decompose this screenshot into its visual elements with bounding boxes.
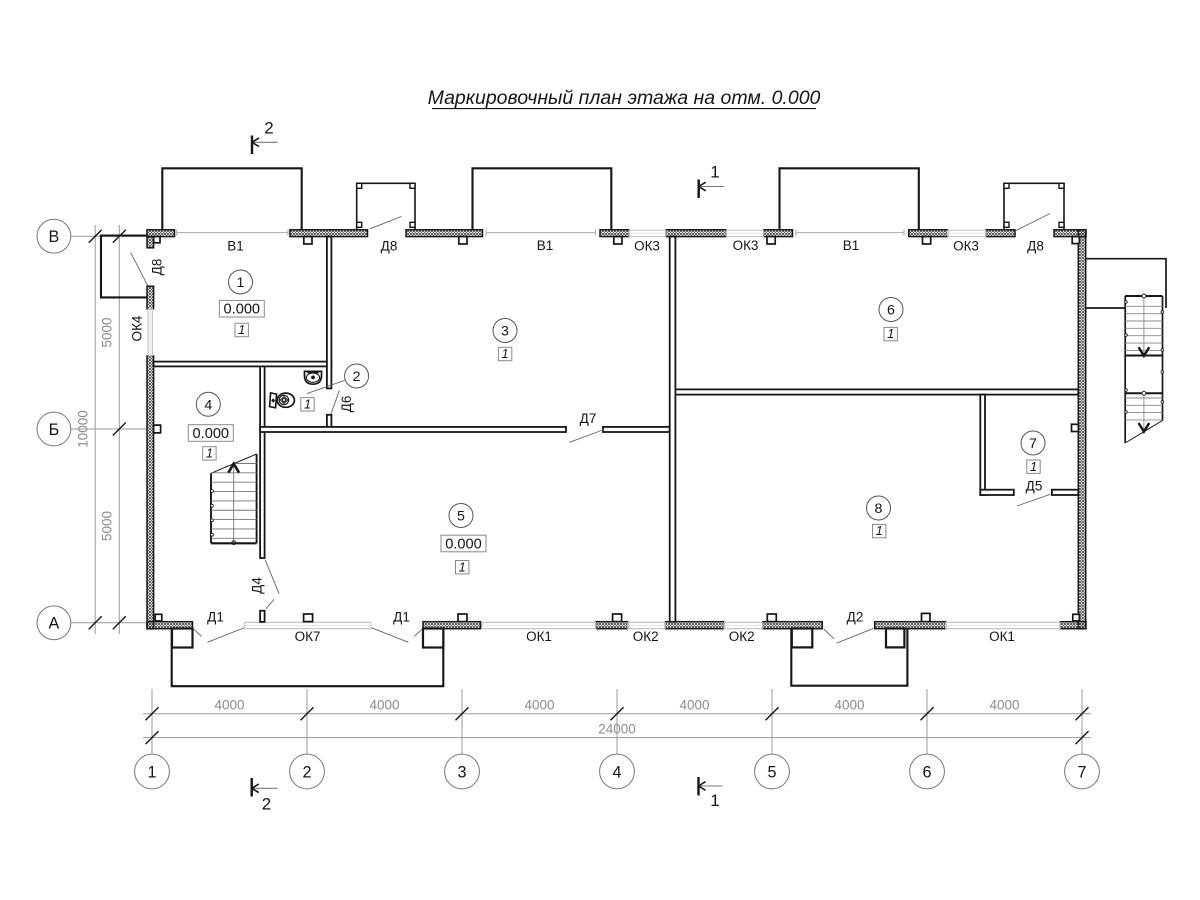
svg-text:Д8: Д8: [381, 239, 398, 254]
svg-text:1: 1: [887, 326, 894, 341]
svg-text:Д5: Д5: [1026, 479, 1043, 494]
svg-text:Д1: Д1: [393, 609, 410, 624]
svg-text:Маркировочный план этажа на от: Маркировочный план этажа на отм. 0.000: [428, 87, 821, 109]
svg-text:4000: 4000: [524, 698, 554, 713]
svg-text:1: 1: [876, 523, 883, 538]
svg-text:4: 4: [204, 397, 212, 413]
svg-text:В1: В1: [537, 238, 554, 253]
svg-text:1: 1: [237, 275, 245, 291]
svg-text:1: 1: [1030, 459, 1037, 474]
svg-text:2: 2: [353, 369, 361, 385]
svg-text:3: 3: [501, 324, 509, 340]
svg-text:ОК1: ОК1: [989, 629, 1015, 644]
svg-text:В: В: [48, 228, 59, 246]
svg-text:4000: 4000: [989, 698, 1019, 713]
svg-text:2: 2: [262, 795, 271, 814]
svg-text:Д4: Д4: [250, 577, 265, 594]
svg-text:В1: В1: [843, 238, 860, 253]
svg-text:4000: 4000: [214, 698, 244, 713]
svg-text:ОК4: ОК4: [130, 315, 145, 341]
svg-text:Б: Б: [49, 421, 60, 439]
svg-text:Д7: Д7: [580, 411, 597, 426]
svg-text:Д8: Д8: [1027, 239, 1044, 254]
svg-text:1: 1: [206, 446, 213, 461]
svg-text:5000: 5000: [100, 317, 115, 347]
svg-text:0.000: 0.000: [445, 536, 482, 552]
svg-text:10000: 10000: [76, 410, 91, 448]
svg-text:Д6: Д6: [339, 396, 354, 413]
svg-text:ОК2: ОК2: [633, 629, 659, 644]
svg-text:7: 7: [1029, 436, 1037, 452]
svg-text:1: 1: [459, 559, 466, 574]
svg-text:6: 6: [887, 303, 895, 319]
svg-text:ОК3: ОК3: [733, 238, 759, 253]
svg-text:4: 4: [612, 763, 621, 781]
svg-text:В1: В1: [227, 239, 244, 254]
svg-text:ОК2: ОК2: [729, 629, 755, 644]
svg-text:1: 1: [147, 763, 156, 781]
svg-text:Д8: Д8: [150, 259, 165, 276]
svg-text:2: 2: [264, 119, 273, 138]
svg-text:5000: 5000: [100, 511, 115, 541]
svg-text:1: 1: [710, 791, 719, 810]
svg-text:1: 1: [710, 163, 719, 182]
svg-text:5: 5: [767, 763, 776, 781]
svg-text:24000: 24000: [598, 721, 636, 736]
svg-text:3: 3: [457, 763, 466, 781]
svg-text:1: 1: [502, 346, 509, 361]
svg-text:4000: 4000: [834, 698, 864, 713]
svg-text:8: 8: [875, 501, 883, 517]
svg-text:5: 5: [457, 509, 465, 525]
svg-text:ОК3: ОК3: [953, 239, 979, 254]
svg-text:ОК7: ОК7: [295, 629, 321, 644]
svg-text:Д1: Д1: [207, 609, 224, 624]
svg-text:4000: 4000: [679, 698, 709, 713]
svg-text:0.000: 0.000: [193, 426, 230, 442]
svg-text:7: 7: [1077, 763, 1086, 781]
svg-text:1: 1: [238, 322, 245, 337]
svg-text:1: 1: [304, 396, 311, 411]
svg-text:0.000: 0.000: [224, 302, 261, 318]
svg-text:ОК3: ОК3: [634, 239, 660, 254]
svg-text:6: 6: [922, 763, 931, 781]
svg-text:А: А: [48, 615, 59, 633]
svg-text:Д2: Д2: [847, 609, 864, 624]
svg-text:4000: 4000: [369, 698, 399, 713]
svg-text:ОК1: ОК1: [526, 629, 552, 644]
svg-text:2: 2: [302, 763, 311, 781]
